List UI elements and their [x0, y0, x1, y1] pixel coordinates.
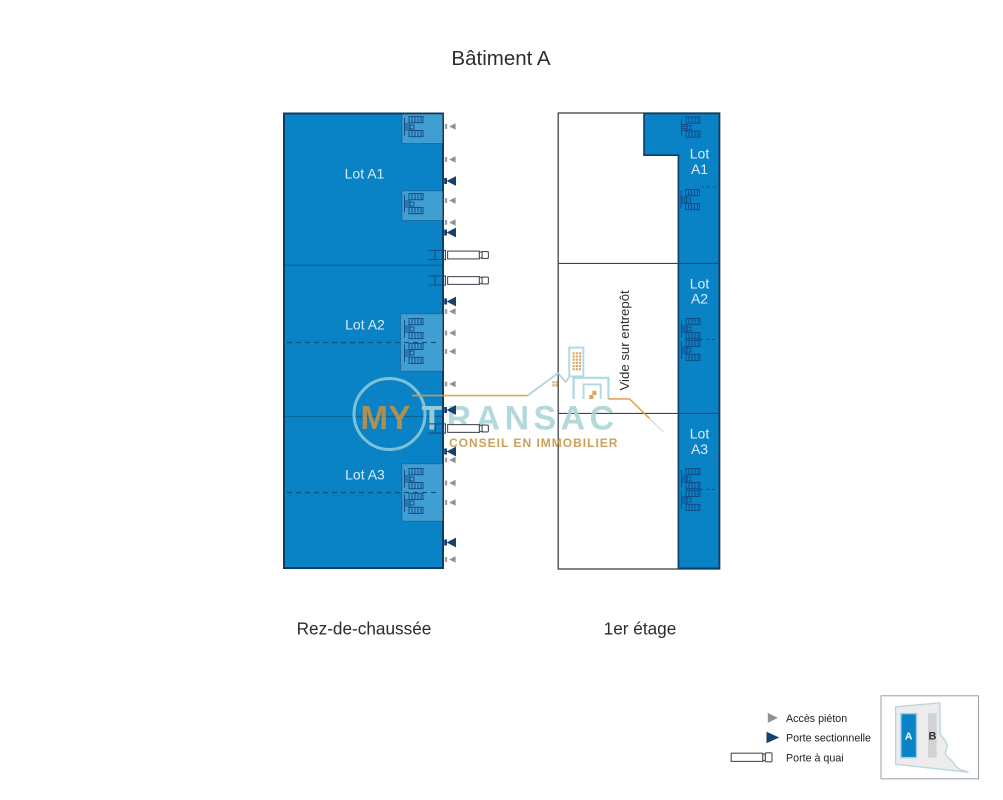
svg-text:Vide sur entrepôt: Vide sur entrepôt	[617, 290, 632, 391]
svg-text:Bâtiment A: Bâtiment A	[451, 47, 550, 70]
svg-text:A2: A2	[691, 291, 708, 307]
svg-text:A: A	[905, 731, 913, 743]
svg-text:Lot A1: Lot A1	[345, 166, 385, 182]
svg-text:A1: A1	[691, 161, 708, 177]
svg-text:Lot: Lot	[690, 276, 710, 292]
svg-text:Porte à quai: Porte à quai	[786, 753, 844, 765]
svg-text:Porte sectionnelle: Porte sectionnelle	[786, 733, 871, 745]
svg-text:Lot A3: Lot A3	[345, 467, 385, 483]
svg-text:A3: A3	[691, 441, 708, 457]
svg-text:Lot: Lot	[690, 146, 710, 162]
svg-text:CONSEIL EN IMMOBILIER: CONSEIL EN IMMOBILIER	[449, 436, 618, 450]
svg-text:1er étage: 1er étage	[604, 619, 677, 639]
svg-text:Rez-de-chaussée: Rez-de-chaussée	[297, 619, 432, 639]
svg-text:B: B	[929, 731, 937, 743]
svg-text:Accès piéton: Accès piéton	[786, 713, 847, 725]
svg-text:MY: MY	[361, 399, 412, 436]
svg-text:Lot A2: Lot A2	[345, 317, 385, 333]
svg-text:Lot: Lot	[690, 426, 710, 442]
